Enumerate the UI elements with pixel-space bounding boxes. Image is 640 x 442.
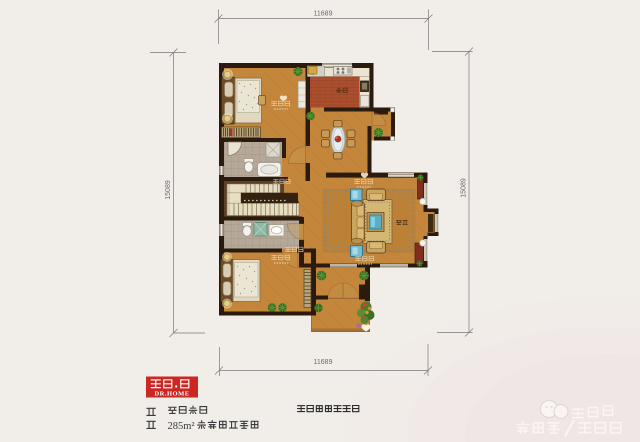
svg-text:15089: 15089	[461, 178, 468, 198]
svg-text:285m²: 285m²	[168, 421, 195, 432]
svg-text:15089: 15089	[165, 180, 172, 200]
svg-text:DR.HOME: DR.HOME	[154, 391, 189, 398]
svg-text:11689: 11689	[314, 11, 333, 18]
svg-text:11689: 11689	[314, 359, 333, 366]
